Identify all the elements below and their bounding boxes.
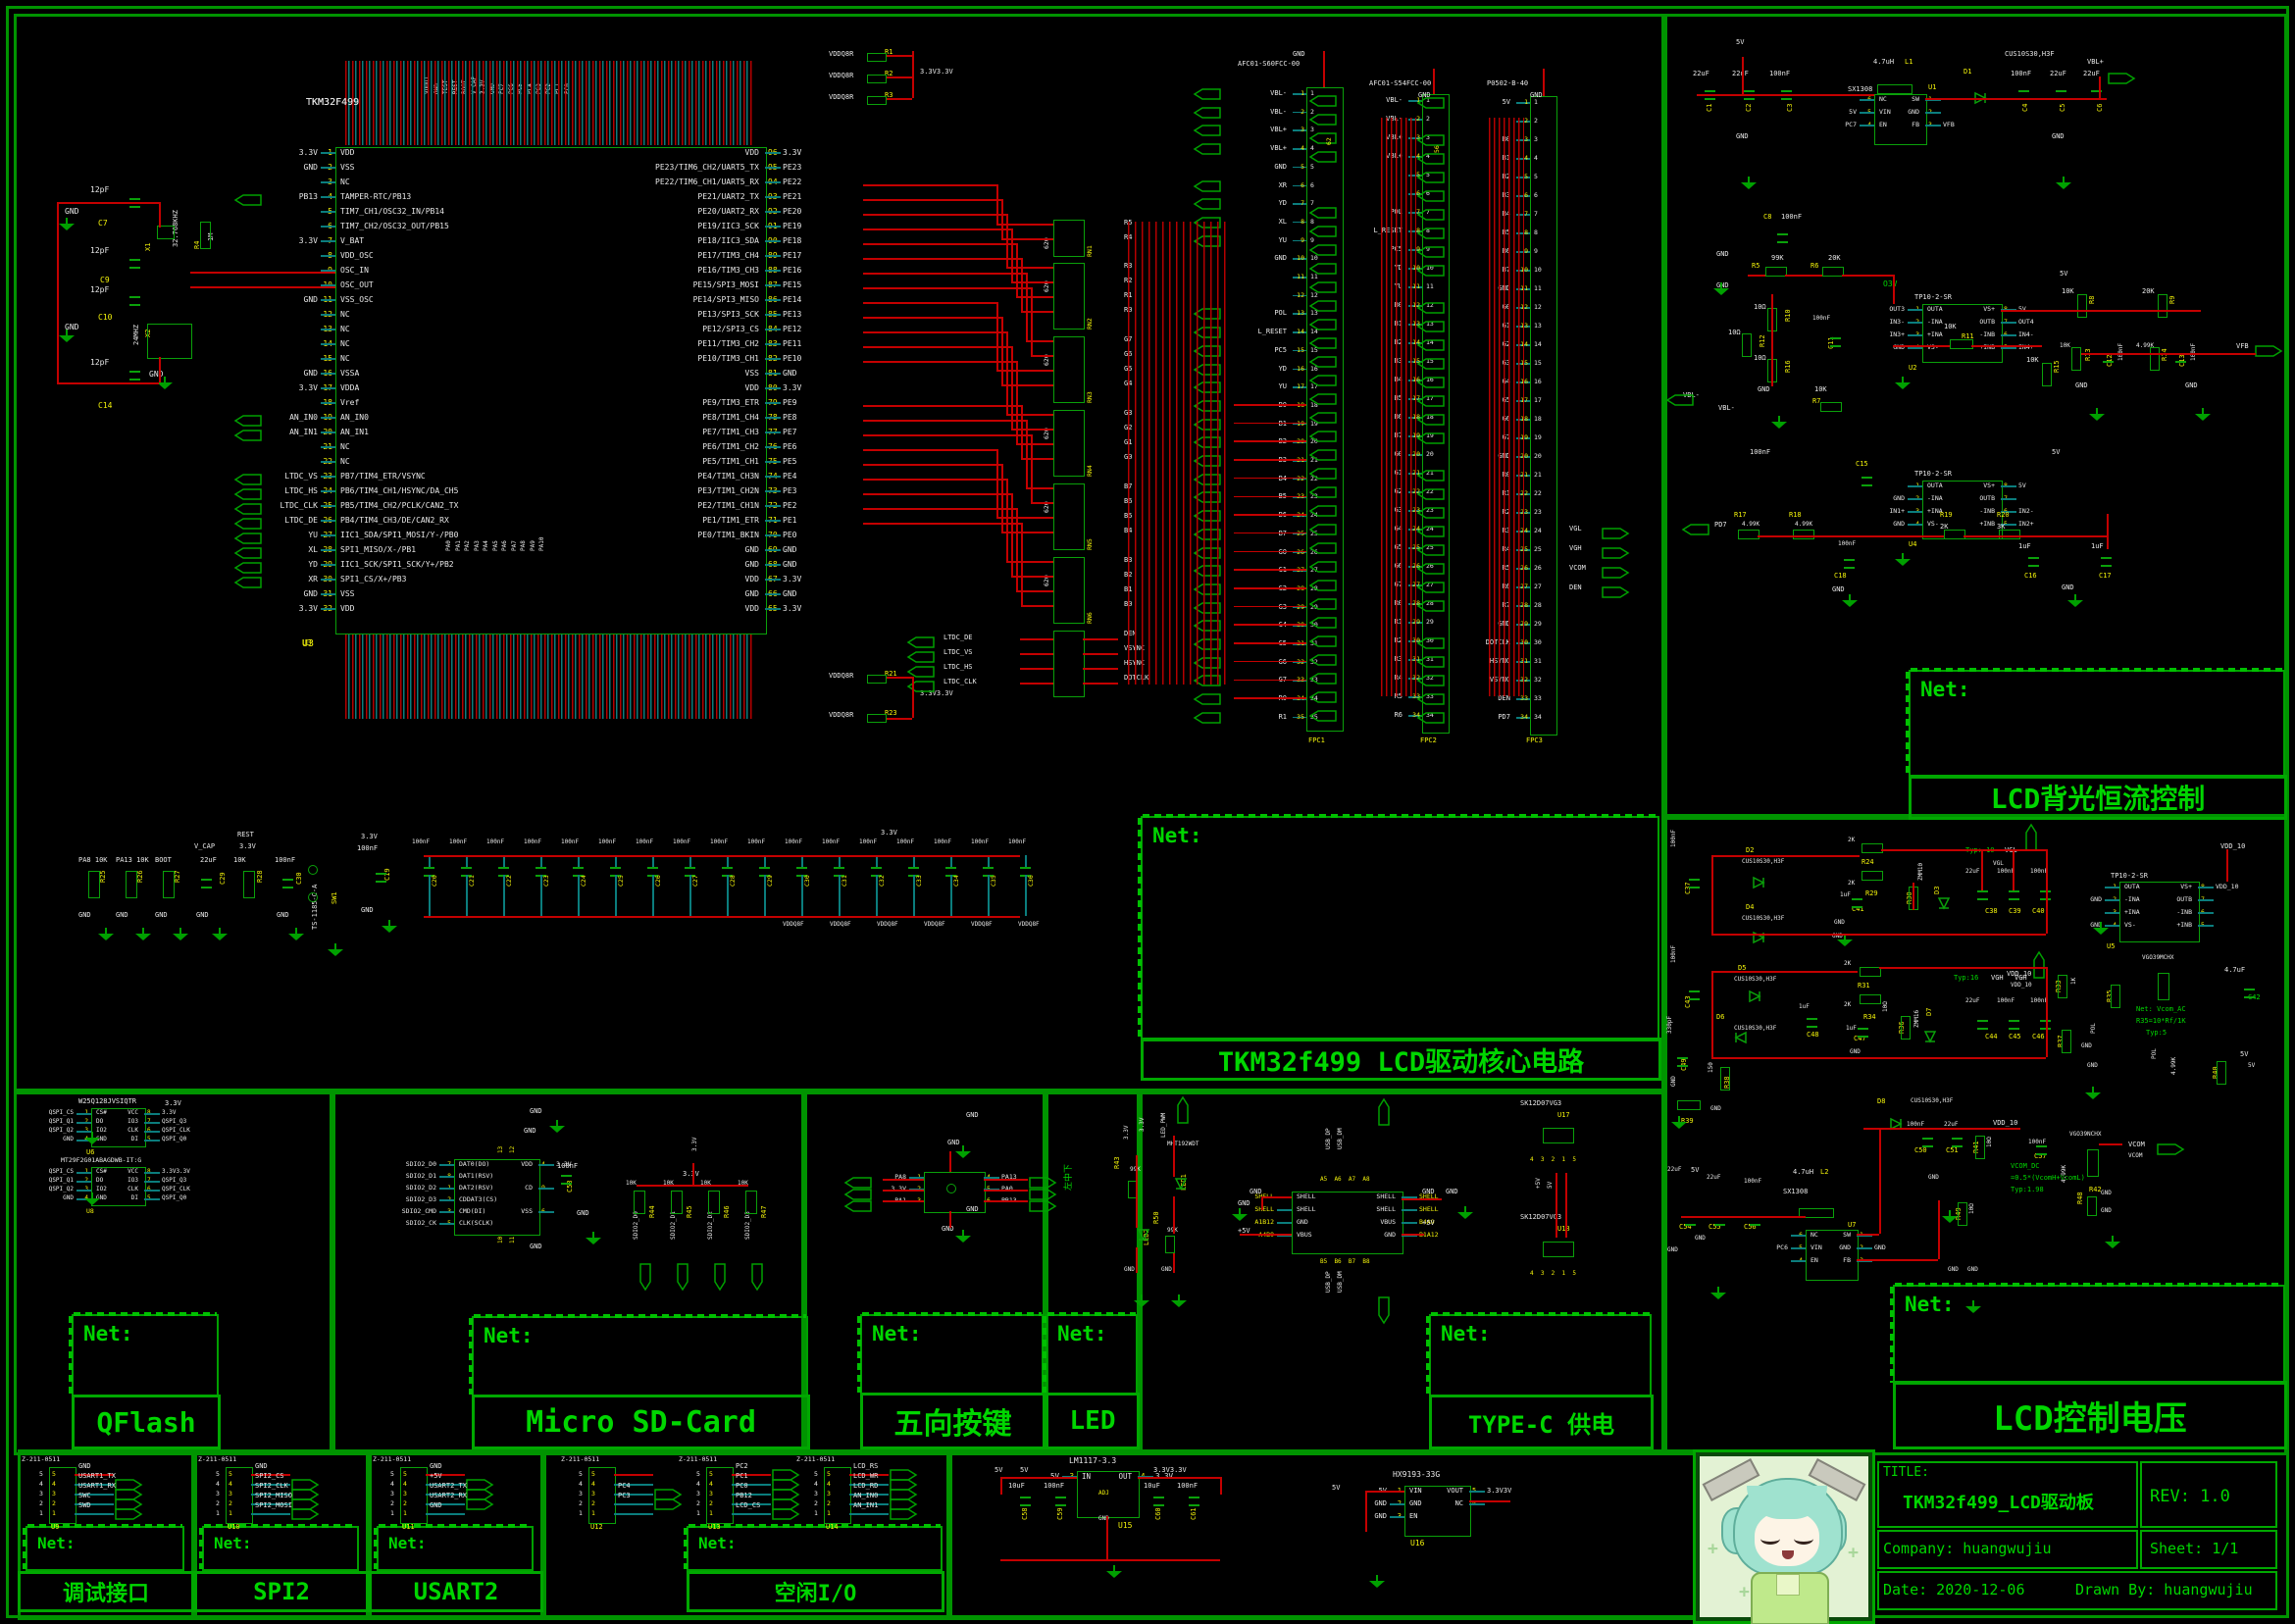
schematic-label: 3 xyxy=(52,1491,56,1497)
schematic-label: R29 xyxy=(1865,890,1878,897)
schematic-label: 100nF xyxy=(1671,945,1677,963)
schematic-label: 4 xyxy=(52,1481,56,1488)
schematic-label: 5V xyxy=(2060,271,2067,278)
ground-icon xyxy=(2056,182,2071,189)
schematic-label: VBL- xyxy=(1718,405,1735,412)
schematic-label: 4.7uH xyxy=(1793,1169,1813,1176)
net-arrow-icon xyxy=(235,415,261,427)
schematic-label: C5 xyxy=(2060,104,2066,112)
wire xyxy=(1006,331,1008,414)
schematic-label: CUS10S30,H3F xyxy=(1742,916,1784,922)
schematic-label: GND xyxy=(1710,1106,1721,1112)
capacitor-icon xyxy=(1689,990,1700,1000)
net-label: Net: xyxy=(484,1324,534,1347)
component-box xyxy=(200,222,211,249)
schematic-label: AFC01-S60FCC-00 xyxy=(1238,61,1300,68)
wire xyxy=(1748,275,1765,277)
schematic-label: LTDC_HS xyxy=(943,664,973,671)
schematic-label: Z-211-0511 xyxy=(679,1456,717,1463)
wire xyxy=(1025,855,1027,867)
schematic-label: C22 xyxy=(506,875,513,887)
ground-icon xyxy=(1369,1581,1385,1588)
schematic-label: 1 xyxy=(390,1510,394,1517)
schematic-label: GND xyxy=(196,912,209,919)
schematic-label: R19 xyxy=(1940,512,1953,519)
schematic-label: 22uF xyxy=(2050,71,2066,77)
net-arrow-icon xyxy=(1310,114,1336,126)
schematic-label: GND xyxy=(116,912,128,919)
wire xyxy=(1697,94,1874,96)
schematic-label: VFB xyxy=(2236,343,2249,350)
capacitor-icon xyxy=(129,371,140,381)
wire xyxy=(1006,267,1053,269)
schematic-label: X1 xyxy=(145,243,152,251)
schematic-label: 28 xyxy=(1534,602,1542,609)
schematic-label: TS-1185-C-A xyxy=(312,885,319,930)
schematic-label: VDDQ8F xyxy=(783,922,804,928)
schematic-label: C1 xyxy=(1707,104,1713,112)
wire xyxy=(1857,1259,1938,1261)
ground-icon xyxy=(1771,422,1787,429)
schematic-label: VDD_10 xyxy=(2007,971,2031,978)
wire xyxy=(765,461,781,463)
schematic-label: 100nF xyxy=(357,845,378,852)
wire xyxy=(887,718,912,720)
ground-icon xyxy=(59,335,75,342)
schematic-label: DEN xyxy=(1446,695,1510,702)
net-arrow-icon xyxy=(1310,412,1336,424)
wire xyxy=(321,476,335,478)
schematic-label: V_CAP xyxy=(194,843,215,850)
ground-icon xyxy=(1837,939,1853,946)
schematic-label: 5 xyxy=(696,1471,700,1478)
wire xyxy=(988,855,990,867)
schematic-label: PA7 xyxy=(512,540,518,551)
net-arrow-icon xyxy=(1177,1097,1189,1123)
capacitor-icon xyxy=(1189,1497,1199,1506)
wire-bundle xyxy=(1489,118,1524,696)
schematic-label: 8 xyxy=(1534,229,1538,236)
schematic-label: SK12D07VG3 xyxy=(1520,1100,1561,1107)
schematic-label: 2 xyxy=(216,1500,220,1507)
component-box xyxy=(1053,483,1085,550)
wire xyxy=(2081,353,2256,355)
schematic-label: 4 xyxy=(709,1481,713,1488)
schematic-label: VDD xyxy=(655,384,759,392)
net-arrow-icon xyxy=(751,1264,763,1290)
net-arrow-icon xyxy=(1310,207,1336,219)
schematic-label: 2 xyxy=(1426,116,1430,123)
wire xyxy=(863,361,1016,363)
component-box xyxy=(1861,871,1883,881)
schematic-label: 3.3V xyxy=(218,605,318,613)
schematic-label: R13 xyxy=(2085,348,2092,361)
wire xyxy=(839,855,841,867)
schematic-label: 1 xyxy=(216,1510,220,1517)
schematic-label: GND xyxy=(2052,133,2065,140)
wire xyxy=(321,299,335,301)
title-idle-io: 空闲I/O xyxy=(687,1571,944,1612)
wire xyxy=(637,1185,748,1187)
wire xyxy=(863,464,1001,466)
wire xyxy=(1083,668,1118,670)
schematic-label: 29 xyxy=(1534,621,1542,628)
schematic-label: 10uF xyxy=(1144,1483,1160,1490)
wire xyxy=(439,1199,454,1201)
schematic-label: PE16 xyxy=(783,267,801,275)
schematic-label: PC0 xyxy=(736,1483,748,1490)
schematic-label: GND xyxy=(1161,1267,1172,1273)
schematic-label: 3.3V xyxy=(361,834,378,840)
schematic-label: C46 xyxy=(2032,1034,2045,1040)
schematic-label: GND xyxy=(1716,251,1729,258)
schematic-label: PA4 xyxy=(484,540,489,551)
schematic-label: 22 xyxy=(1534,490,1542,497)
schematic-label: TIM7_CH1/OSC32_IN/PB14 xyxy=(340,208,444,216)
schematic-label: VSSA xyxy=(340,370,359,378)
net-arrow-icon xyxy=(1683,524,1708,535)
titleblock-title-cell: TITLE: TKM32f499_LCD驱动板 xyxy=(1877,1461,2138,1528)
wire xyxy=(1261,1196,1263,1210)
net-arrow-icon xyxy=(1418,582,1444,593)
schematic-label: NC xyxy=(340,458,350,466)
wire xyxy=(615,855,617,867)
wire xyxy=(863,434,1031,436)
schematic-label: 62 xyxy=(1326,137,1333,145)
schematic-label: 3 xyxy=(39,1491,43,1497)
schematic-label: 3.3V3.3V xyxy=(920,69,953,76)
schematic-label: 1 xyxy=(39,1510,43,1517)
net-arrow-icon xyxy=(235,518,261,530)
wire xyxy=(1011,493,1013,576)
component-box xyxy=(1861,843,1883,853)
junction-icon xyxy=(946,1184,956,1193)
schematic-label: 10 xyxy=(498,1237,504,1243)
wire xyxy=(863,331,1006,333)
schematic-label: R12 xyxy=(1759,334,1766,347)
component-box xyxy=(2158,294,2167,318)
schematic-label: GND xyxy=(430,1463,442,1470)
wire xyxy=(765,152,781,154)
schematic-label: D4 xyxy=(1746,904,1754,911)
diode-icon xyxy=(1732,1032,1748,1043)
wire xyxy=(996,224,1053,226)
schematic-label: 5V xyxy=(1332,1485,1340,1492)
schematic-label: GND xyxy=(255,1463,268,1470)
schematic-label: MT29F2G01ABAGDWB-IT:G xyxy=(61,1157,141,1164)
schematic-label: OUTB xyxy=(2088,896,2192,903)
schematic-label: SDIO2_CMD xyxy=(336,1208,436,1215)
mascot-eye-left xyxy=(1760,1533,1780,1545)
schematic-label: 5 xyxy=(403,1471,407,1478)
schematic-label: IN3+ xyxy=(1805,331,1905,338)
titleblock-title: TKM32f499_LCD驱动板 xyxy=(1903,1489,2094,1514)
schematic-label: 3.3V xyxy=(683,1171,699,1178)
net-arrow-icon xyxy=(1310,673,1336,685)
wire xyxy=(1234,514,1306,516)
schematic-label: D7 xyxy=(1926,1008,1933,1016)
title-usart2: USART2 xyxy=(369,1571,543,1612)
wire xyxy=(765,402,781,404)
schematic-label: O3V xyxy=(1883,280,1897,288)
wire xyxy=(863,302,996,304)
schematic-label: R20 xyxy=(1997,512,2010,519)
schematic-label: R24 xyxy=(1861,859,1874,866)
wire xyxy=(321,534,335,536)
schematic-label: ZMM16 xyxy=(1914,1010,1920,1028)
title-led: LED xyxy=(1045,1393,1140,1449)
wire xyxy=(765,608,781,610)
wire xyxy=(765,520,781,522)
schematic-label: VDD_10 xyxy=(2216,884,2238,890)
wire xyxy=(1001,532,1053,533)
schematic-label: VBL- xyxy=(1222,90,1287,97)
schematic-label: 1uF xyxy=(1799,1004,1810,1010)
schematic-label: GND xyxy=(1805,521,1905,528)
schematic-label: 7 xyxy=(1292,200,1304,207)
wire xyxy=(1323,51,1325,87)
net-label: Net: xyxy=(1152,824,1202,847)
ground-icon xyxy=(2105,1242,2120,1248)
wire xyxy=(1220,1477,1222,1495)
wire xyxy=(144,1190,160,1192)
schematic-label: PE22 xyxy=(783,178,801,186)
schematic-label: DEN xyxy=(1569,584,1582,591)
schematic-label: PA10 xyxy=(539,537,545,551)
net-arrow-icon xyxy=(1310,542,1336,554)
wire xyxy=(614,1513,653,1515)
schematic-label: GND xyxy=(1249,1189,1262,1195)
mascot-eye-right xyxy=(1794,1533,1813,1545)
wire xyxy=(863,405,1021,407)
wire xyxy=(863,449,996,451)
schematic-label: 10Ω xyxy=(1728,330,1741,336)
schematic-label: GND xyxy=(577,1210,589,1217)
wire xyxy=(538,1211,554,1213)
schematic-label: 2K xyxy=(1848,881,1855,887)
schematic-label: USART2_RX xyxy=(430,1493,467,1499)
wire xyxy=(765,196,781,198)
schematic-label: 1 xyxy=(827,1510,831,1517)
schematic-label: R8 xyxy=(2089,296,2096,304)
schematic-label: 100nF xyxy=(710,839,728,845)
net-arrow-icon xyxy=(235,474,261,485)
schematic-label: 3 xyxy=(579,1491,583,1497)
schematic-label: 2 xyxy=(403,1500,407,1507)
schematic-label: 2 xyxy=(591,1500,595,1507)
capacitor-icon xyxy=(282,879,293,888)
schematic-label: PE12 xyxy=(783,326,801,333)
wire-bundle xyxy=(1128,222,1226,685)
ground-icon xyxy=(1671,1122,1687,1129)
schematic-label: 21 xyxy=(1534,472,1542,479)
schematic-label: FPC2 xyxy=(1420,737,1437,744)
schematic-label: C34 xyxy=(953,875,960,887)
schematic-label: GND xyxy=(2185,382,2198,389)
schematic-label: 5V xyxy=(2240,1051,2248,1058)
net-arrow-icon xyxy=(639,1264,651,1290)
schematic-label: SHELL xyxy=(1174,1206,1274,1213)
schematic-label: 5 xyxy=(1292,164,1304,171)
component-box xyxy=(2077,294,2087,318)
schematic-label: LTDC_HS xyxy=(218,487,318,495)
net-arrow-icon xyxy=(845,1177,871,1189)
diode-icon xyxy=(1938,896,1950,912)
component-box xyxy=(708,1191,720,1214)
schematic-label: 150 xyxy=(1708,1062,1714,1073)
title-backlight: LCD背光恒流控制 xyxy=(1909,775,2287,820)
wire xyxy=(1234,661,1306,663)
schematic-label: Z-211-0511 xyxy=(561,1456,599,1463)
schematic-label: 100nF xyxy=(636,839,653,845)
net-arrow-icon xyxy=(292,1508,318,1520)
schematic-label: 22uF xyxy=(1693,71,1709,77)
wire xyxy=(2001,498,2016,500)
schematic-label: QSPI_Q3 xyxy=(162,1119,186,1125)
schematic-label: U5 xyxy=(2107,943,2115,950)
schematic-label: 5 xyxy=(1310,164,1314,171)
component-box xyxy=(867,53,887,62)
schematic-label: 100nF xyxy=(822,839,840,845)
schematic-label: VDDQ8R xyxy=(829,712,853,719)
schematic-label: 100nF xyxy=(673,839,690,845)
schematic-label: POL xyxy=(2091,1023,2097,1034)
schematic-label: 23 xyxy=(1534,509,1542,516)
net-arrow-icon xyxy=(1310,95,1336,107)
wire xyxy=(764,875,766,916)
net-arrow-icon xyxy=(2158,1143,2183,1155)
schematic-label: 100nF xyxy=(275,857,295,864)
schematic-label: PD7 xyxy=(1446,714,1510,721)
net-arrow-icon xyxy=(235,194,261,206)
schematic-label: LCD_RD xyxy=(853,1483,878,1490)
schematic-label: 10K xyxy=(2062,288,2074,295)
capacitor-icon xyxy=(1689,879,1700,888)
component-box xyxy=(2150,347,2160,371)
wire xyxy=(883,1179,924,1181)
schematic-label: U10 xyxy=(228,1524,240,1531)
schematic-label: PE2/TIM1_CH1N xyxy=(655,502,759,510)
schematic-label: GND xyxy=(524,1128,536,1135)
schematic-label: USB_DM xyxy=(1338,1128,1344,1149)
schematic-label: C29 xyxy=(220,872,227,885)
schematic-label: 100nF xyxy=(2011,71,2031,77)
title-typec: TYPE-C 供电 xyxy=(1429,1395,1654,1449)
schematic-label: 22uF xyxy=(1965,869,1979,875)
schematic-label: PC2 xyxy=(736,1463,748,1470)
net-arrow-icon xyxy=(1418,563,1444,575)
diode-icon xyxy=(1138,1228,1149,1243)
schematic-label: SDIO2_D2 xyxy=(336,1185,436,1192)
schematic-label: C21 xyxy=(469,875,476,887)
schematic-label: HX9193-33G xyxy=(1393,1471,1440,1479)
wire xyxy=(984,1200,1028,1202)
component-box xyxy=(1053,263,1085,330)
wire xyxy=(1938,1200,1940,1259)
wire xyxy=(1681,1216,1806,1218)
schematic-label: 3 xyxy=(696,1491,700,1497)
capacitor-icon xyxy=(1055,1497,1066,1506)
schematic-label: PE16/TIM3_CH3 xyxy=(655,267,759,275)
schematic-label: GND xyxy=(655,590,759,598)
title-sdcard: Micro SD-Card xyxy=(472,1395,810,1449)
net-arrow-icon xyxy=(1418,395,1444,407)
wire xyxy=(1001,317,1003,384)
schematic-label: D3 xyxy=(1934,887,1941,894)
schematic-label: 31 xyxy=(1534,658,1542,665)
schematic-label: PA1 xyxy=(456,540,462,551)
schematic-label: 1 xyxy=(696,1510,700,1517)
schematic-label: R42 xyxy=(2089,1187,2102,1193)
schematic-label: ZMM10 xyxy=(1918,863,1924,881)
wire xyxy=(1001,464,1003,532)
component-box xyxy=(2058,975,2067,998)
schematic-label: 4 xyxy=(696,1481,700,1488)
schematic-label: PA8 xyxy=(521,540,527,551)
net-arrow-icon xyxy=(1310,449,1336,461)
schematic-label: PE3 xyxy=(783,487,796,495)
schematic-label: 4.7uH xyxy=(1873,59,1894,66)
schematic-label: 3.3V xyxy=(1140,1118,1146,1132)
mascot-sparkle: + xyxy=(1739,1582,1750,1602)
schematic-label: V_BAT xyxy=(340,237,364,245)
schematic-label: Typ:1.98 xyxy=(2011,1187,2044,1193)
wire xyxy=(876,875,878,916)
net-arrow-icon xyxy=(1418,675,1444,686)
schematic-label: 100nF xyxy=(934,839,951,845)
schematic-label: IN4- xyxy=(2018,331,2034,338)
capacitor-icon xyxy=(201,879,212,888)
wire xyxy=(1857,1247,1872,1249)
schematic-label: RN5 xyxy=(1087,538,1094,550)
schematic-label: PC1 xyxy=(736,1473,748,1480)
wire xyxy=(321,211,335,213)
net-arrow-icon xyxy=(1418,172,1444,183)
schematic-label: 100nF xyxy=(412,839,430,845)
schematic-label: R31 xyxy=(1858,983,1870,990)
net-arrow-icon xyxy=(1310,486,1336,498)
schematic-label: C18 xyxy=(1834,573,1847,580)
wire xyxy=(1234,569,1306,571)
wire xyxy=(1879,1128,1881,1234)
schematic-label: OUTB xyxy=(1891,319,1995,326)
schematic-label: GND xyxy=(783,546,796,554)
wire xyxy=(1026,273,1028,340)
schematic-label: GND xyxy=(655,546,759,554)
schematic-label: 24MHZ xyxy=(133,325,140,345)
capacitor-icon xyxy=(1153,1497,1164,1506)
schematic-label: 4 xyxy=(216,1481,220,1488)
schematic-label: 11 xyxy=(510,1237,516,1243)
schematic-label: AN_IN1 xyxy=(340,429,369,436)
schematic-label: 3.3V xyxy=(218,384,318,392)
schematic-label: SHELL xyxy=(1292,1193,1396,1200)
titleblock-rev: REV: 1.0 xyxy=(2150,1487,2230,1506)
schematic-label: 4.7uF xyxy=(2224,967,2245,974)
schematic-label: 100nF xyxy=(1744,1179,1761,1185)
wire xyxy=(321,549,335,551)
schematic-label: C29 xyxy=(767,875,774,887)
wire xyxy=(1016,508,1018,590)
net-arrow-icon xyxy=(1418,693,1444,705)
net-arrow-icon xyxy=(1310,431,1336,442)
ground-icon xyxy=(328,949,343,956)
component-box xyxy=(1822,267,1844,277)
wire xyxy=(1083,683,1118,685)
net-label: Net: xyxy=(214,1534,252,1552)
schematic-label: 100nF xyxy=(1838,541,1856,547)
netbox-lcd-voltage: Net: xyxy=(1893,1285,2285,1385)
